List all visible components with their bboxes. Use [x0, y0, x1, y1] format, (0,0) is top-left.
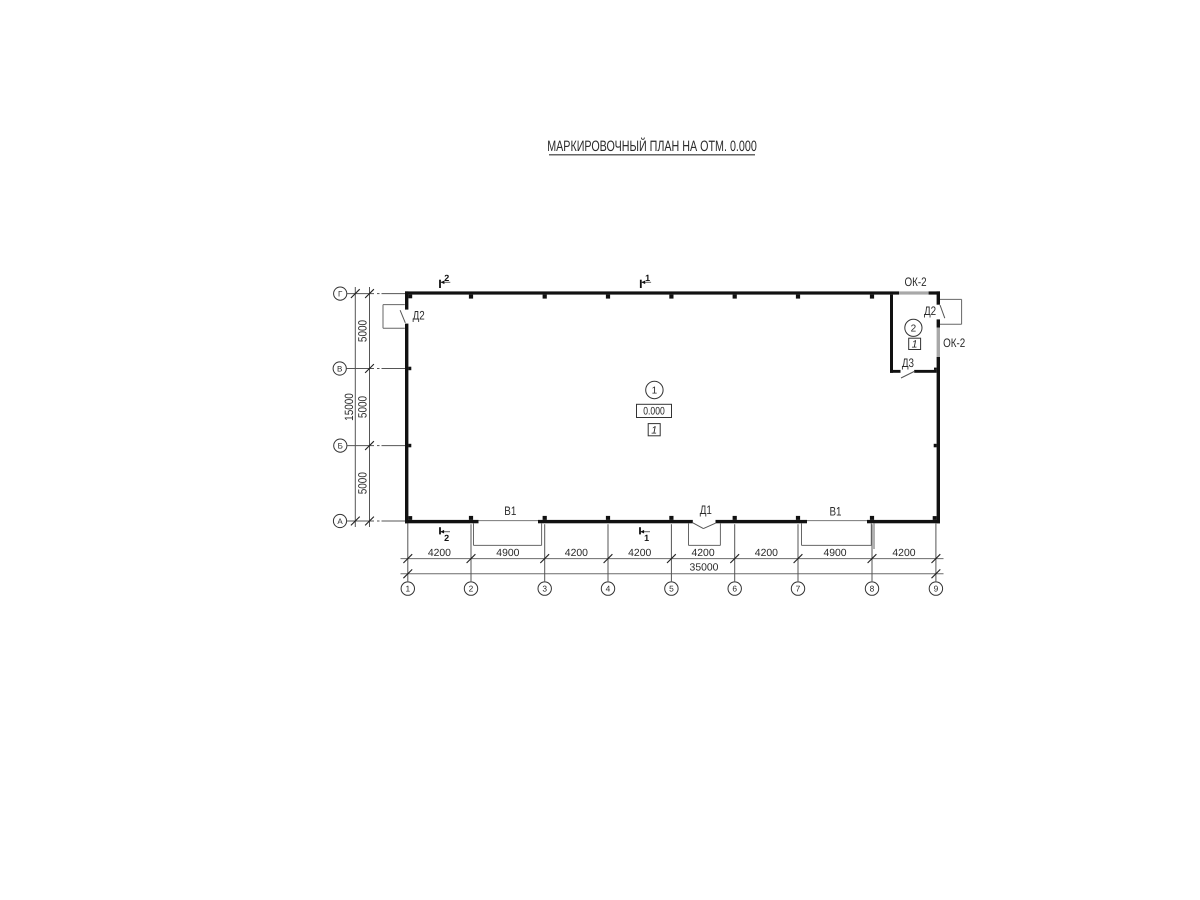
svg-text:В1: В1	[504, 504, 516, 518]
svg-text:2: 2	[444, 533, 449, 543]
svg-text:1: 1	[912, 339, 918, 351]
svg-text:5000: 5000	[355, 472, 369, 494]
svg-text:1: 1	[644, 533, 649, 543]
svg-text:4200: 4200	[691, 548, 714, 559]
svg-text:9: 9	[934, 584, 939, 594]
svg-text:МАРКИРОВОЧНЫЙ ПЛАН НА ОТМ. 0.0: МАРКИРОВОЧНЫЙ ПЛАН НА ОТМ. 0.000	[547, 137, 757, 155]
svg-text:2: 2	[911, 323, 917, 334]
svg-text:1: 1	[645, 273, 650, 283]
svg-text:4200: 4200	[565, 548, 588, 559]
svg-text:Д2: Д2	[924, 304, 936, 318]
svg-text:2: 2	[469, 584, 474, 594]
svg-text:7: 7	[796, 584, 801, 594]
svg-text:4900: 4900	[823, 548, 846, 559]
svg-text:5: 5	[669, 584, 674, 594]
svg-text:6: 6	[732, 584, 737, 594]
svg-text:ОК-2: ОК-2	[904, 275, 926, 289]
svg-text:5000: 5000	[355, 320, 369, 342]
svg-text:1: 1	[652, 386, 658, 397]
svg-text:Б: Б	[338, 442, 343, 451]
svg-text:4200: 4200	[628, 548, 651, 559]
svg-text:Д3: Д3	[902, 356, 914, 370]
svg-text:В: В	[337, 364, 342, 373]
svg-text:15000: 15000	[342, 393, 356, 421]
svg-text:4: 4	[606, 584, 611, 594]
svg-text:А: А	[337, 517, 343, 526]
svg-text:35000: 35000	[690, 563, 719, 574]
svg-text:3: 3	[542, 584, 547, 594]
svg-text:5000: 5000	[355, 396, 369, 418]
svg-text:Г: Г	[338, 290, 343, 299]
svg-text:В1: В1	[829, 505, 841, 519]
svg-text:Д1: Д1	[700, 503, 712, 517]
svg-text:Д2: Д2	[413, 309, 425, 323]
svg-text:1: 1	[405, 584, 410, 594]
svg-text:4200: 4200	[892, 548, 915, 559]
svg-text:4200: 4200	[755, 548, 778, 559]
svg-text:1: 1	[651, 425, 657, 437]
svg-text:ОК-2: ОК-2	[943, 336, 965, 350]
svg-text:0.000: 0.000	[643, 405, 664, 417]
svg-text:2: 2	[444, 273, 449, 283]
svg-text:8: 8	[870, 584, 875, 594]
svg-text:4900: 4900	[496, 548, 519, 559]
svg-text:4200: 4200	[428, 548, 451, 559]
